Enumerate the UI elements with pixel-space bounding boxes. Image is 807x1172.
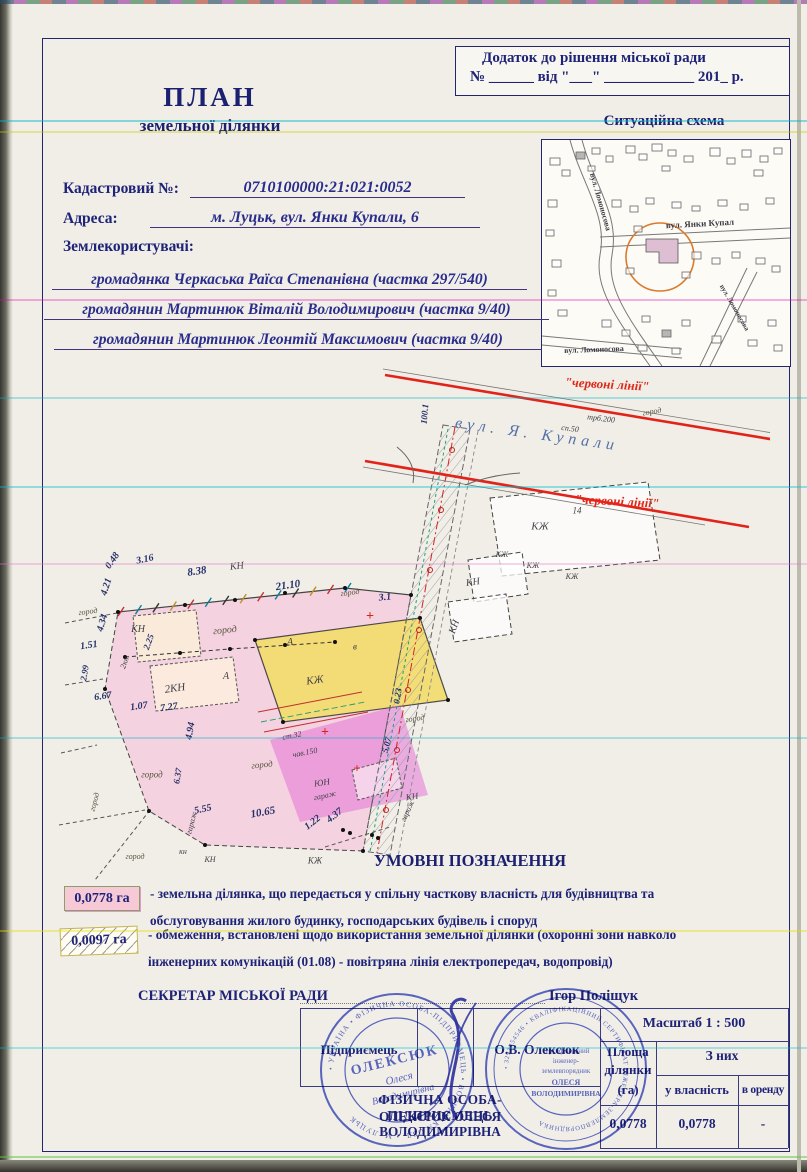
landuser-3: громадянин Мартинюк Леонтій Максимович (… — [54, 331, 542, 350]
appendix-line1: Додаток до рішення міської ради — [456, 47, 789, 67]
legend-value-restriction: 0,0097 га — [71, 932, 127, 949]
page-title: ПЛАН — [110, 82, 310, 113]
legend-value-parcel: 0,0778 га — [74, 891, 129, 906]
scan-fringe — [0, 1156, 807, 1158]
landuser-2: громадянин Мартинюк Віталій Володимирови… — [44, 301, 549, 320]
legend-restriction-line2: інженерних комунікацій (01.08) - повітря… — [148, 954, 613, 970]
scan-edge-bottom — [0, 1160, 807, 1172]
situational-scheme: вул. Ломоносовавул. Янки Купалвул. Ломон… — [541, 139, 791, 367]
label: вул. Ломоносова — [564, 345, 624, 355]
area-header-line3: (га) — [600, 1082, 656, 1098]
legend-title: УМОВНІ ПОЗНАЧЕННЯ — [330, 851, 610, 871]
rent-value: - — [738, 1116, 788, 1132]
of-them-header: З них — [656, 1048, 788, 1064]
scanned-plan-document: Додаток до рішення міської ради № ______… — [0, 0, 807, 1172]
rent-header: в оренду — [738, 1084, 788, 1096]
page-subtitle: земельної ділянки — [110, 116, 310, 136]
address-value: м. Луцьк, вул. Янки Купали, 6 — [150, 209, 480, 228]
landuser-1: громадянка Черкаська Раїса Степанівна (ч… — [52, 271, 527, 290]
table-line — [656, 1075, 788, 1076]
table-line — [300, 1008, 788, 1009]
entrepreneur-name: О.В. Олексюк — [475, 1042, 599, 1058]
label: вул. Ломоносова — [718, 284, 750, 333]
plan-drawing — [45, 355, 770, 880]
ownership-value: 0,0778 — [656, 1116, 738, 1132]
table-line — [300, 1086, 600, 1087]
table-line — [788, 1008, 789, 1148]
fop-line3: ВОЛОДИМИРІВНА — [330, 1124, 550, 1140]
secretary-name: Ігор Поліщук — [549, 988, 638, 1005]
legend-swatch-restriction: 0,0097 га — [60, 926, 139, 957]
cadastral-value: 0710100000:21:021:0052 — [190, 179, 465, 198]
scan-edge-right — [797, 0, 801, 1172]
scan-edge-left — [0, 0, 13, 1172]
scan-edge-top — [0, 0, 807, 4]
legend-restriction-line1: - обмеження, встановлені щодо використан… — [148, 927, 676, 943]
address-label: Адреса: — [63, 210, 118, 228]
appendix-box: Додаток до рішення міської ради № ______… — [455, 46, 790, 96]
scale-label: Масштаб 1 : 500 — [600, 1016, 788, 1032]
area-value: 0,0778 — [600, 1116, 656, 1132]
table-line — [417, 1008, 418, 1086]
scheme-title: Ситуаційна схема — [540, 113, 788, 130]
area-header-line1: Площа — [600, 1044, 656, 1060]
table-line — [600, 1148, 788, 1149]
label: вул. Ломоносова — [588, 172, 612, 231]
table-line — [600, 1041, 788, 1042]
scheme-map-labels: вул. Ломоносовавул. Янки Купалвул. Ломон… — [542, 140, 790, 366]
legend-swatch-parcel: 0,0778 га — [64, 886, 140, 911]
table-line — [600, 1105, 788, 1106]
area-header-line2: ділянки — [600, 1062, 656, 1078]
secretary-signature-line — [300, 1003, 545, 1004]
entrepreneur-label: Підприємець — [302, 1042, 416, 1058]
landusers-label: Землекористувачі: — [63, 238, 194, 256]
fop-line2: ОЛЕКСЮК ОЛЕСЯ — [330, 1109, 550, 1125]
label: вул. Янки Купал — [666, 218, 735, 231]
ownership-header: у власність — [656, 1083, 738, 1098]
appendix-line2: № ______ від "___" ____________ 201_ р. — [456, 67, 789, 86]
legend-parcel-line1: - земельна ділянка, що передається у спі… — [150, 886, 654, 902]
cadastral-label: Кадастровий №: — [63, 180, 179, 198]
